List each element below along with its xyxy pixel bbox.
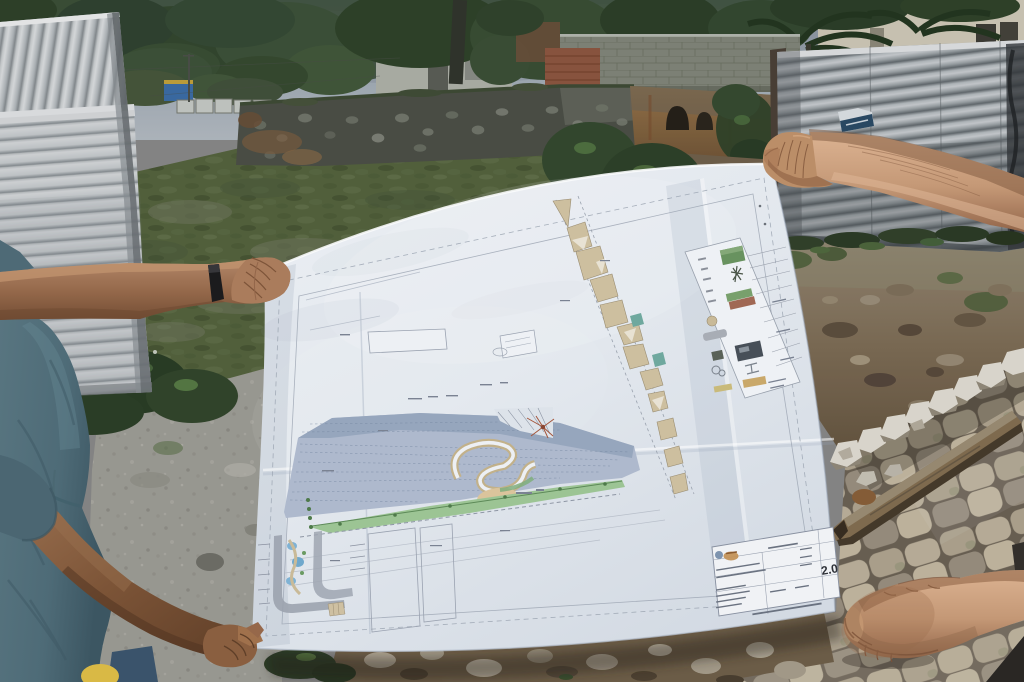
svg-text:2.0: 2.0: [820, 561, 839, 578]
